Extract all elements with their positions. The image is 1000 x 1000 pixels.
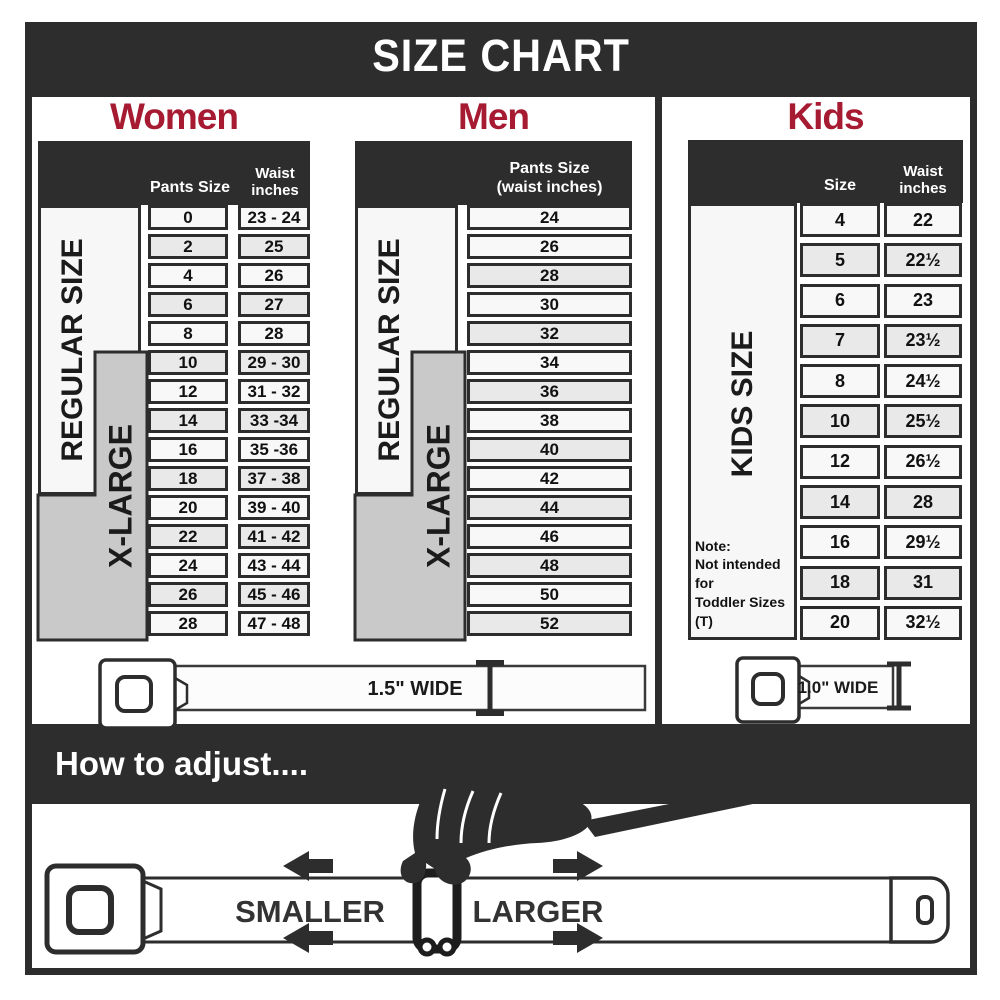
table-row: 1837 - 38: [148, 466, 310, 495]
table-row: 2039 - 40: [148, 495, 310, 524]
table-cell: 32: [467, 321, 632, 346]
table-cell: 10: [148, 350, 228, 375]
men-header-line2: (waist inches): [497, 179, 603, 196]
men-xlarge-label: X-LARGE: [420, 424, 457, 568]
table-cell: 28: [238, 321, 310, 346]
table-cell: 41 - 42: [238, 524, 310, 549]
table-cell: 23 - 24: [238, 205, 310, 230]
table-cell: 42: [467, 466, 632, 491]
kids-note-line3: Toddler Sizes (T): [695, 594, 785, 629]
table-cell: 16: [800, 525, 880, 559]
table-row: 40: [467, 437, 632, 466]
women-pants-size-header: Pants Size: [148, 179, 232, 197]
table-row: 828: [148, 321, 310, 350]
table-row: 32: [467, 321, 632, 350]
table-cell: 16: [148, 437, 228, 462]
table-cell: 8: [800, 364, 880, 398]
table-row: 1025½: [800, 404, 962, 438]
men-size-table: 242628303234363840424446485052: [467, 205, 632, 640]
kids-table-header: Size Waist inches: [688, 140, 963, 203]
table-cell: 23: [884, 284, 962, 318]
how-to-adjust-heading: How to adjust....: [25, 745, 308, 783]
table-cell: 30: [467, 292, 632, 317]
table-row: 1226½: [800, 445, 962, 479]
table-cell: 7: [800, 324, 880, 358]
table-row: 522½: [800, 243, 962, 277]
table-cell: 10: [800, 404, 880, 438]
table-cell: 18: [800, 566, 880, 600]
table-row: 023 - 24: [148, 205, 310, 234]
table-cell: 12: [800, 445, 880, 479]
table-row: 627: [148, 292, 310, 321]
table-cell: 14: [148, 408, 228, 433]
table-cell: 8: [148, 321, 228, 346]
adjust-illustration-box: [25, 797, 977, 975]
table-row: 1231 - 32: [148, 379, 310, 408]
table-row: 2443 - 44: [148, 553, 310, 582]
table-cell: 20: [148, 495, 228, 520]
table-cell: 26: [467, 234, 632, 259]
table-cell: 0: [148, 205, 228, 230]
table-cell: 26½: [884, 445, 962, 479]
table-row: 28: [467, 263, 632, 292]
table-cell: 47 - 48: [238, 611, 310, 636]
table-cell: 37 - 38: [238, 466, 310, 491]
table-cell: 23½: [884, 324, 962, 358]
table-cell: 36: [467, 379, 632, 404]
table-cell: 38: [467, 408, 632, 433]
table-row: 1629½: [800, 525, 962, 559]
adult-belt-illustration: 1.5" WIDE: [90, 650, 650, 734]
table-cell: 44: [467, 495, 632, 520]
table-row: 24: [467, 205, 632, 234]
kids-note: Note: Not intended for Toddler Sizes (T): [695, 537, 797, 631]
table-cell: 4: [148, 263, 228, 288]
table-row: 26: [467, 234, 632, 263]
table-row: 2645 - 46: [148, 582, 310, 611]
kids-waist-header: Waist inches: [884, 163, 962, 198]
table-cell: 32½: [884, 606, 962, 640]
table-cell: 22: [884, 203, 962, 237]
men-xlarge-label-wrap: X-LARGE: [412, 352, 465, 640]
table-cell: 24: [467, 205, 632, 230]
table-row: 38: [467, 408, 632, 437]
table-cell: 40: [467, 437, 632, 462]
table-row: 1831: [800, 566, 962, 600]
table-cell: 28: [148, 611, 228, 636]
women-table-header: Pants Size Waist inches: [38, 141, 310, 205]
table-row: 723½: [800, 324, 962, 358]
table-cell: 24½: [884, 364, 962, 398]
size-chart-banner: SIZE CHART: [25, 22, 977, 90]
kids-size-header: Size: [800, 177, 880, 195]
table-row: 2032½: [800, 606, 962, 640]
size-chart-page: SIZE CHART Women Men Kids Pants Size Wai…: [0, 0, 1000, 1000]
table-row: 30: [467, 292, 632, 321]
men-pants-size-header: Pants Size (waist inches): [467, 160, 632, 197]
table-row: 426: [148, 263, 310, 292]
kids-size-box: KIDS SIZE Note: Not intended for Toddler…: [688, 203, 797, 640]
table-cell: 46: [467, 524, 632, 549]
table-cell: 26: [238, 263, 310, 288]
table-cell: 35 -36: [238, 437, 310, 462]
table-row: 46: [467, 524, 632, 553]
table-cell: 18: [148, 466, 228, 491]
table-row: 36: [467, 379, 632, 408]
table-row: 1433 -34: [148, 408, 310, 437]
how-to-adjust-band: How to adjust....: [25, 731, 977, 797]
seatbelt-buckle-icon: [100, 660, 187, 728]
table-row: 44: [467, 495, 632, 524]
kids-size-table: 422522½623723½824½1025½1226½14281629½183…: [800, 203, 962, 640]
table-row: 422: [800, 203, 962, 237]
table-row: 1635 -36: [148, 437, 310, 466]
table-cell: 50: [467, 582, 632, 607]
table-cell: 31: [884, 566, 962, 600]
table-row: 225: [148, 234, 310, 263]
table-cell: 24: [148, 553, 228, 578]
kids-belt-width-label: 1.0" WIDE: [798, 678, 879, 697]
table-cell: 2: [148, 234, 228, 259]
table-cell: 14: [800, 485, 880, 519]
women-waist-header-line1: Waist: [255, 165, 294, 182]
kids-note-line2: Not intended for: [695, 556, 781, 591]
kids-belt-illustration: 1.0" WIDE: [725, 650, 945, 730]
table-row: 623: [800, 284, 962, 318]
table-cell: 22: [148, 524, 228, 549]
kids-waist-header-line2: inches: [899, 180, 947, 197]
table-row: 1029 - 30: [148, 350, 310, 379]
table-cell: 22½: [884, 243, 962, 277]
table-cell: 20: [800, 606, 880, 640]
table-cell: 28: [884, 485, 962, 519]
women-waist-header: Waist inches: [240, 165, 310, 200]
table-cell: 45 - 46: [238, 582, 310, 607]
table-cell: 6: [800, 284, 880, 318]
table-cell: 28: [467, 263, 632, 288]
men-header-line1: Pants Size: [509, 160, 589, 177]
table-row: 50: [467, 582, 632, 611]
women-xlarge-label: X-LARGE: [103, 424, 140, 568]
women-section-title: Women: [38, 94, 310, 140]
table-cell: 12: [148, 379, 228, 404]
table-cell: 48: [467, 553, 632, 578]
women-size-table: 023 - 242254266278281029 - 301231 - 3214…: [148, 205, 310, 640]
table-cell: 4: [800, 203, 880, 237]
table-cell: 43 - 44: [238, 553, 310, 578]
table-row: 824½: [800, 364, 962, 398]
women-xlarge-label-wrap: X-LARGE: [95, 352, 147, 640]
table-cell: 26: [148, 582, 228, 607]
adult-belt-width-label: 1.5" WIDE: [367, 678, 462, 700]
table-cell: 27: [238, 292, 310, 317]
men-section-title: Men: [355, 94, 632, 140]
panel-divider: [655, 90, 662, 731]
table-cell: 39 - 40: [238, 495, 310, 520]
page-title: SIZE CHART: [372, 30, 630, 82]
table-row: 48: [467, 553, 632, 582]
table-cell: 52: [467, 611, 632, 636]
table-row: 34: [467, 350, 632, 379]
table-row: 1428: [800, 485, 962, 519]
table-cell: 29½: [884, 525, 962, 559]
table-cell: 6: [148, 292, 228, 317]
kids-size-label: KIDS SIZE: [726, 331, 760, 478]
table-row: 52: [467, 611, 632, 640]
table-cell: 33 -34: [238, 408, 310, 433]
table-cell: 25½: [884, 404, 962, 438]
table-cell: 34: [467, 350, 632, 375]
table-cell: 29 - 30: [238, 350, 310, 375]
table-cell: 25: [238, 234, 310, 259]
table-row: 2847 - 48: [148, 611, 310, 640]
table-cell: 5: [800, 243, 880, 277]
kids-section-title: Kids: [688, 94, 963, 140]
table-row: 42: [467, 466, 632, 495]
women-waist-header-line2: inches: [251, 182, 299, 199]
kids-note-line1: Note:: [695, 538, 731, 554]
table-row: 2241 - 42: [148, 524, 310, 553]
table-cell: 31 - 32: [238, 379, 310, 404]
men-table-header: Pants Size (waist inches): [355, 141, 632, 205]
kids-waist-header-line1: Waist: [903, 163, 942, 180]
